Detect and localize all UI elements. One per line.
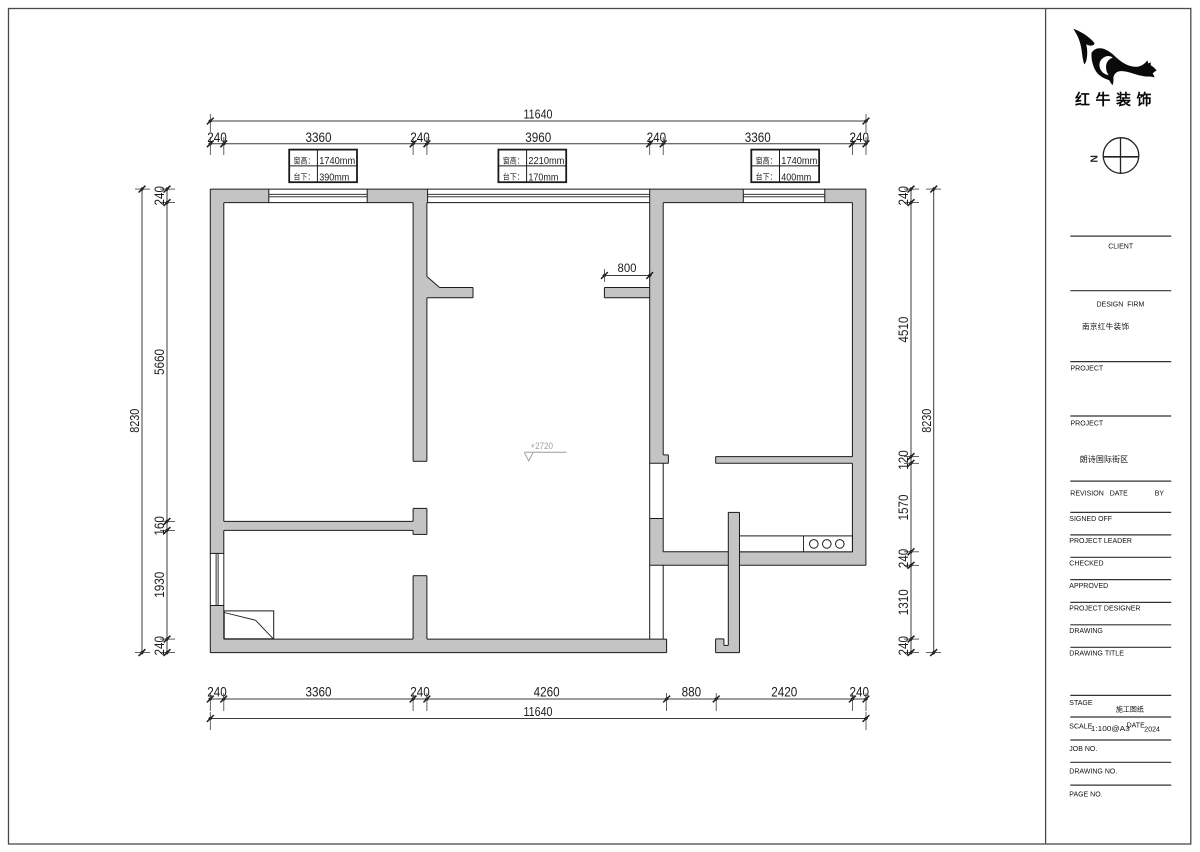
svg-text:240: 240 — [895, 549, 911, 569]
svg-text:2210mm: 2210mm — [528, 155, 564, 167]
svg-text:1740mm: 1740mm — [319, 155, 355, 167]
svg-text:2024: 2024 — [1144, 727, 1160, 734]
svg-text:3360: 3360 — [306, 684, 332, 700]
svg-text:朗诗国际街区: 朗诗国际街区 — [1080, 454, 1129, 464]
svg-text:CLIENT: CLIENT — [1108, 243, 1134, 250]
svg-text:N: N — [1089, 155, 1101, 163]
svg-text:400mm: 400mm — [781, 171, 811, 183]
svg-text:CHECKED: CHECKED — [1069, 561, 1103, 568]
svg-text:240: 240 — [207, 129, 227, 145]
svg-text:DRAWING TITLE: DRAWING TITLE — [1069, 651, 1124, 658]
svg-text:BY: BY — [1155, 491, 1165, 498]
svg-text:4260: 4260 — [534, 684, 560, 700]
svg-text:4510: 4510 — [895, 316, 911, 342]
svg-text:台下：: 台下： — [294, 172, 315, 182]
svg-text:PROJECT DESIGNER: PROJECT DESIGNER — [1069, 606, 1140, 613]
svg-text:240: 240 — [849, 684, 869, 700]
svg-text:240: 240 — [895, 186, 911, 206]
svg-text:3360: 3360 — [306, 129, 332, 145]
svg-text:SCALE: SCALE — [1069, 724, 1092, 731]
svg-text:8230: 8230 — [127, 409, 142, 433]
svg-text:DRAWING NO.: DRAWING NO. — [1069, 769, 1117, 776]
svg-text:240: 240 — [849, 129, 869, 145]
svg-text:红牛装饰: 红牛装饰 — [1075, 91, 1157, 109]
svg-text:1570: 1570 — [895, 494, 911, 520]
svg-text:880: 880 — [682, 684, 702, 700]
svg-text:11640: 11640 — [524, 107, 553, 122]
svg-text:APPROVED: APPROVED — [1069, 583, 1108, 590]
svg-text:窗高：: 窗高： — [756, 155, 777, 165]
svg-text:160: 160 — [151, 516, 167, 536]
svg-text:120: 120 — [895, 450, 911, 470]
svg-text:台下：: 台下： — [756, 172, 777, 182]
svg-text:3360: 3360 — [745, 129, 771, 145]
svg-text:窗高：: 窗高： — [503, 155, 524, 165]
svg-text:+2720: +2720 — [530, 441, 553, 451]
svg-text:南京红牛装饰: 南京红牛装饰 — [1082, 321, 1129, 331]
svg-text:PAGE NO.: PAGE NO. — [1069, 791, 1102, 798]
svg-text:1310: 1310 — [895, 589, 911, 615]
svg-text:SIGNED OFF: SIGNED OFF — [1069, 516, 1112, 523]
svg-text:PROJECT: PROJECT — [1071, 421, 1104, 428]
svg-text:240: 240 — [895, 636, 911, 656]
svg-text:1930: 1930 — [151, 572, 167, 598]
svg-text:800: 800 — [618, 263, 637, 275]
svg-text:1:100@A3: 1:100@A3 — [1091, 726, 1130, 733]
svg-text:240: 240 — [207, 684, 227, 700]
svg-text:窗高：: 窗高： — [294, 155, 315, 165]
svg-text:DATE: DATE — [1127, 723, 1145, 730]
svg-text:240: 240 — [151, 186, 167, 206]
svg-text:台下：: 台下： — [503, 172, 524, 182]
svg-text:240: 240 — [410, 684, 430, 700]
svg-text:1740mm: 1740mm — [781, 155, 817, 167]
svg-text:3960: 3960 — [525, 129, 551, 145]
svg-text:STAGE: STAGE — [1069, 700, 1093, 707]
svg-text:240: 240 — [410, 129, 430, 145]
svg-text:170mm: 170mm — [528, 171, 558, 183]
svg-text:5660: 5660 — [151, 349, 167, 375]
svg-text:REVISION: REVISION — [1070, 491, 1103, 498]
svg-text:DATE: DATE — [1110, 491, 1128, 498]
svg-text:JOB NO.: JOB NO. — [1069, 746, 1097, 753]
svg-text:11640: 11640 — [524, 704, 553, 719]
svg-text:DRAWING: DRAWING — [1069, 628, 1103, 635]
svg-text:PROJECT: PROJECT — [1071, 365, 1104, 372]
svg-text:PROJECT LEADER: PROJECT LEADER — [1069, 538, 1132, 545]
svg-text:2420: 2420 — [771, 684, 797, 700]
svg-text:DESIGN FIRM: DESIGN FIRM — [1096, 301, 1144, 308]
svg-text:8230: 8230 — [919, 409, 934, 433]
svg-text:240: 240 — [647, 129, 667, 145]
svg-text:240: 240 — [151, 636, 167, 656]
svg-text:390mm: 390mm — [319, 171, 349, 183]
svg-text:施工图纸: 施工图纸 — [1116, 705, 1144, 714]
